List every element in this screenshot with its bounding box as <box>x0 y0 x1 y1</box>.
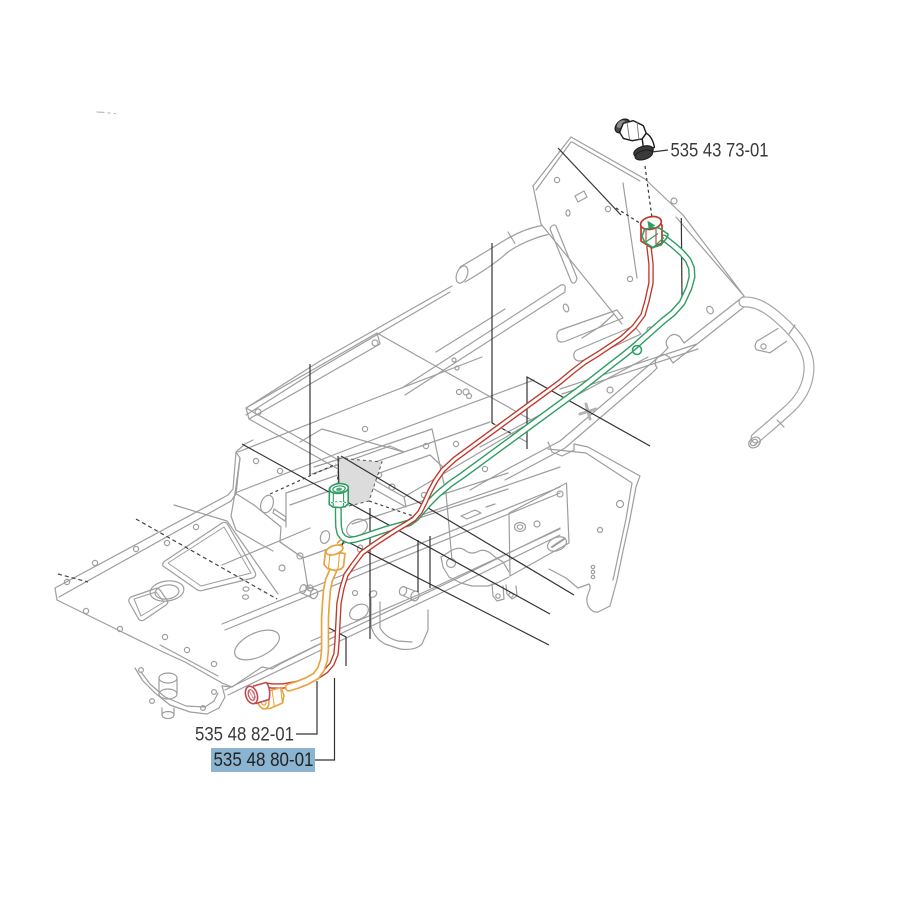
svg-text:535 48 82-01: 535 48 82-01 <box>195 725 294 746</box>
svg-text:535 43 73-01: 535 43 73-01 <box>671 141 769 162</box>
svg-text:535 48 80-01: 535 48 80-01 <box>214 750 314 771</box>
